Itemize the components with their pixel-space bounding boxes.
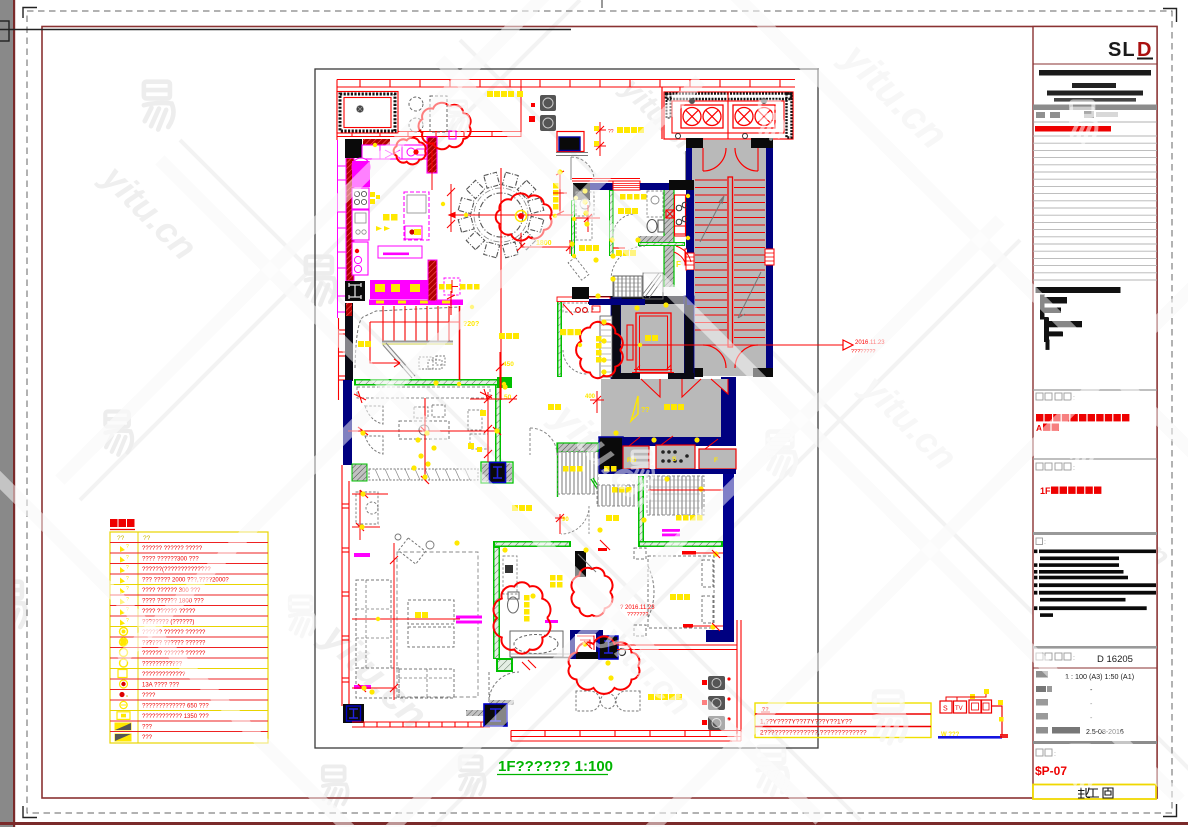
svg-text::: : — [1073, 465, 1075, 472]
svg-text:S: S — [672, 456, 677, 463]
svg-text:??: ?? — [608, 129, 614, 135]
svg-text:13A ???? ???: 13A ???? ??? — [142, 683, 180, 689]
svg-text:?: ? — [126, 586, 129, 592]
svg-text:$P-07: $P-07 — [1035, 764, 1067, 778]
svg-text:?????? ?????? ?????: ?????? ?????? ????? — [142, 546, 203, 552]
svg-text:???: ??? — [142, 735, 153, 741]
svg-text:????: ???? — [142, 693, 156, 699]
svg-text:1F?????? 1:100: 1F?????? 1:100 — [498, 758, 613, 775]
svg-text:?: ? — [126, 576, 129, 582]
svg-text:SL: SL — [1108, 39, 1136, 61]
svg-text:F: F — [714, 457, 718, 464]
svg-text::: : — [1044, 539, 1046, 546]
svg-text:D 16205: D 16205 — [1097, 654, 1133, 665]
svg-text:????????????? 650 ???: ????????????? 650 ??? — [142, 704, 209, 710]
svg-text:?: ? — [126, 618, 129, 624]
svg-text:??: ?? — [641, 407, 650, 414]
svg-text:??: ?? — [143, 535, 151, 542]
svg-text:1,??Y???7Y??77Y???Y??1Y??: 1,??Y???7Y??77Y???Y??1Y?? — [760, 719, 853, 726]
svg-text:?: ? — [126, 565, 129, 571]
svg-text:? 2016.11.23: ? 2016.11.23 — [620, 605, 655, 611]
svg-text:450: 450 — [503, 361, 514, 368]
svg-text::: : — [1073, 655, 1075, 662]
svg-text::: : — [1054, 751, 1056, 758]
svg-text:???? ??????300 ???: ???? ??????300 ??? — [142, 557, 199, 563]
svg-text:?????????????: ????????????? — [142, 672, 186, 678]
svg-text:?: ? — [126, 544, 129, 550]
svg-text:90: 90 — [562, 517, 569, 523]
svg-text:??? ????? 2000 ???,????2000?: ??? ????? 2000 ???,????2000? — [142, 578, 229, 584]
svg-text:S: S — [943, 706, 948, 713]
svg-text:1 : 100 (A3) 1:50 (A1): 1 : 100 (A3) 1:50 (A1) — [1065, 672, 1134, 681]
svg-text:???????????? 1350 ???: ???????????? 1350 ??? — [142, 714, 209, 720]
svg-text:2???????????????,?????????????: 2???????????????,????????????? — [760, 730, 867, 737]
svg-text:TV: TV — [955, 706, 963, 712]
svg-text:???: ??? — [142, 725, 153, 731]
svg-text:?: ? — [126, 555, 129, 561]
svg-text:1F: 1F — [1040, 486, 1051, 496]
svg-text:50: 50 — [504, 394, 512, 401]
svg-text:u: u — [126, 693, 128, 698]
svg-text:400: 400 — [585, 394, 596, 400]
svg-text:??: ?? — [117, 535, 125, 542]
svg-text:???????: ??????? — [627, 612, 648, 618]
svg-text:F: F — [676, 260, 681, 269]
